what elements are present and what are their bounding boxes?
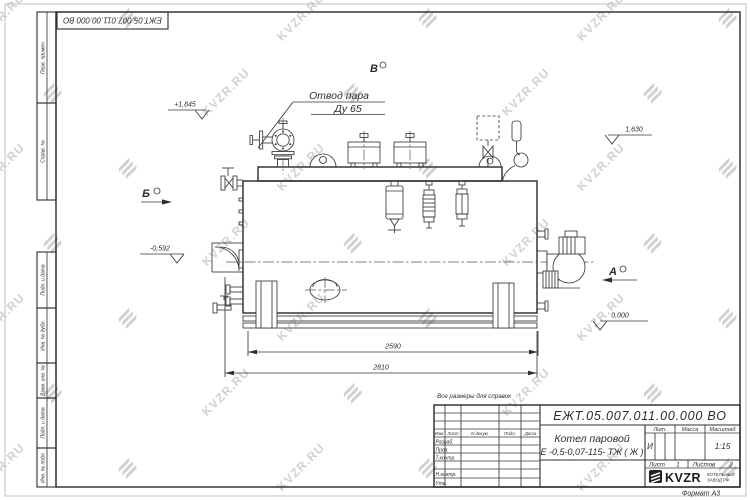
drawing-sheet: KVZR.RUKVZR.RUKVZR.RUKVZR.RUKVZR.RUKVZR.… [0, 0, 750, 500]
elevation-value-1845: +1,845 [174, 102, 196, 109]
blueprint-svg: Перв. примен. Справ. № Подп. и дата Инв.… [0, 0, 750, 500]
elevation-0000: 0,000 [593, 313, 648, 331]
doc-number: ЕЖТ.05.007.011.00.000 ВО [553, 409, 727, 423]
margin-label-inv-podl: Инв. № подл. [41, 452, 47, 483]
product-name-line2: Е -0,5-0,07-115- ТЖ ( Ж ) [541, 447, 644, 457]
col-izm: Изм. [435, 431, 444, 436]
lit-value: И [647, 442, 653, 451]
section-mark-b: Б [141, 188, 172, 205]
company-name: KVZR [665, 471, 701, 485]
support-leg-left [256, 281, 277, 328]
section-letter-a: А [608, 266, 617, 278]
top-stamp: ЕЖТ.05.007.011.00.000 ВО [57, 12, 168, 29]
sheets-value: 2 [728, 462, 733, 469]
support-leg-right [493, 283, 514, 328]
sheet-label: Лист [648, 462, 665, 469]
lifting-lug-right [479, 156, 501, 167]
top-stamp-number: ЕЖТ.05.007.011.00.000 ВО [63, 16, 162, 25]
margin-columns: Перв. примен. Справ. № Подп. и дата Инв.… [37, 12, 56, 487]
elevation-0592: -0,592 [140, 246, 184, 264]
row-nkontr: Н.контр. [436, 472, 457, 478]
margin-label-perv-primen: Перв. примен. [41, 41, 47, 74]
sheets-label: Листов [692, 462, 716, 469]
margin-label-vzam-inv: Взам. инв. № [41, 364, 47, 396]
section-mark-a: А [602, 266, 637, 283]
left-wall-valve [221, 168, 243, 190]
company-sub2: ЗАВОД РФ [707, 478, 730, 483]
elevation-1845: +1,845 [168, 102, 209, 120]
section-letter-v: В [370, 63, 378, 75]
dimension-2590: 2590 [248, 331, 538, 356]
callout-text-line2: Ду 65 [333, 103, 362, 115]
col-ndoc: N докум. [471, 431, 489, 436]
section-mark-v: В [370, 62, 386, 75]
lifting-lug-left [310, 154, 336, 167]
masshtab-label: Масштаб [709, 427, 736, 433]
format-label: Формат А3 [682, 491, 720, 498]
margin-label-inv-dubl: Инв. № дубл. [41, 320, 47, 351]
row-prov: Пров. [436, 448, 449, 454]
company-logo: KVZR КОТЕЛЬНЫЙ ЗАВОД РФ [649, 470, 735, 485]
col-data: Дата [524, 431, 537, 436]
burner-assembly [537, 231, 585, 288]
scale-value: 1:15 [715, 442, 731, 451]
lower-left-nozzles [213, 285, 243, 313]
boiler-drawing: 2590 2810 +1,845 1,630 [140, 62, 652, 377]
massa-label: Масса [682, 427, 699, 433]
product-name-line1: Котел паровой [554, 433, 629, 445]
row-tkontr: Т.контр. [436, 456, 456, 462]
manhole [305, 277, 347, 303]
reference-note: Все размеры для справок [437, 393, 512, 400]
company-sub1: КОТЕЛЬНЫЙ [707, 472, 735, 477]
elevation-1630: 1,630 [605, 127, 652, 145]
col-list: Лист [446, 431, 459, 436]
row-utv: Утв. [436, 481, 447, 487]
pressure-sensor-siphon [503, 121, 529, 181]
steam-outlet-valve [250, 121, 294, 167]
boiler-top-platform [258, 167, 502, 181]
section-letter-b: Б [142, 188, 150, 200]
margin-label-podp-data-2: Подп. и дата [41, 407, 47, 439]
dim-value-2810: 2810 [372, 365, 389, 372]
flue-elbow [212, 243, 243, 272]
margin-label-podp-data-1: Подп. и дата [41, 264, 47, 296]
callout-text-line1: Отвод пара [309, 90, 369, 102]
dim-value-2590: 2590 [384, 344, 401, 351]
level-column [386, 181, 403, 233]
sheet-value: 1 [676, 462, 679, 469]
elevation-value-0000: 0,000 [611, 313, 629, 320]
margin-label-sprav-no: Справ. № [41, 140, 47, 163]
water-level-glass-2 [456, 181, 468, 226]
phantom-fitting [477, 116, 499, 167]
lit-label: Лит. [652, 427, 666, 433]
title-block: Изм. Лист N докум. Подп. Дата Разраб. Пр… [434, 393, 740, 498]
water-level-glass-1 [423, 181, 435, 228]
col-podp: Подп. [504, 431, 516, 436]
elevation-value-1630: 1,630 [625, 127, 643, 134]
row-razrab: Разраб. [436, 440, 454, 446]
elevation-value-0592: -0,592 [150, 246, 170, 253]
